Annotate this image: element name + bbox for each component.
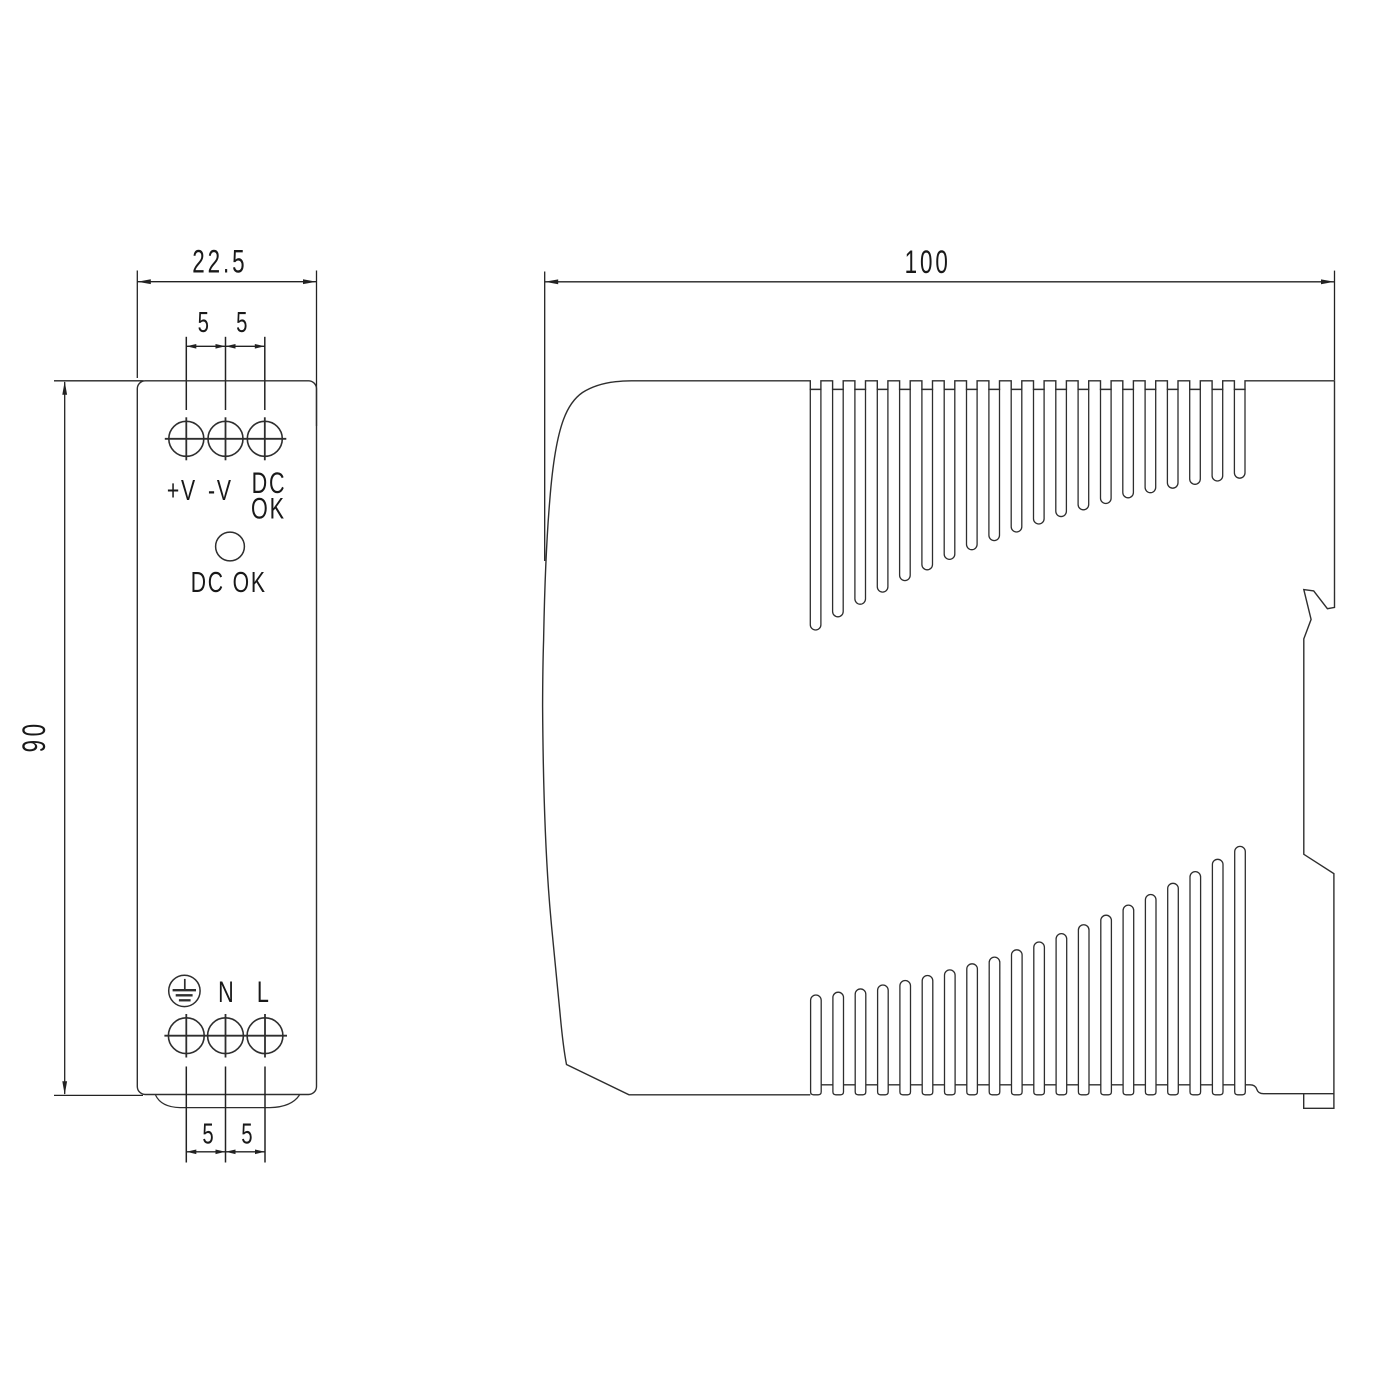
svg-text:L: L bbox=[257, 974, 269, 1008]
svg-text:22.5: 22.5 bbox=[192, 244, 247, 280]
svg-text:DC OK: DC OK bbox=[191, 567, 267, 599]
svg-text:5: 5 bbox=[198, 307, 213, 339]
svg-text:5: 5 bbox=[236, 307, 251, 339]
svg-text:N: N bbox=[218, 974, 234, 1008]
svg-text:OK: OK bbox=[251, 491, 286, 525]
svg-text:100: 100 bbox=[905, 244, 951, 280]
svg-text:+V: +V bbox=[167, 475, 197, 507]
svg-text:90: 90 bbox=[16, 720, 52, 752]
svg-text:5: 5 bbox=[241, 1118, 256, 1150]
svg-text:5: 5 bbox=[202, 1118, 217, 1150]
svg-text:-V: -V bbox=[208, 475, 233, 507]
